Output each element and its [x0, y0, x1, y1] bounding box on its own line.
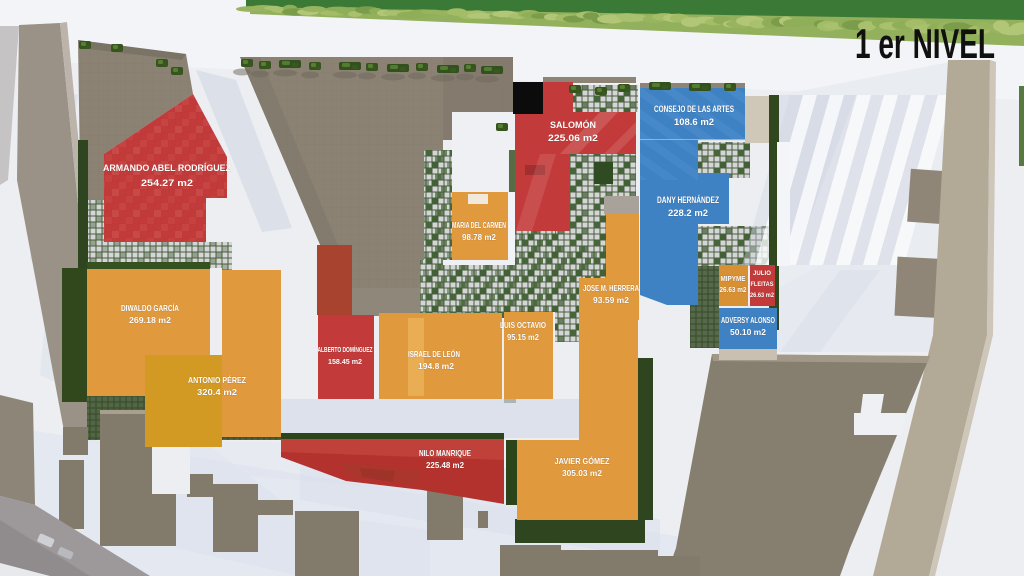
svg-text:JULIO: JULIO: [753, 270, 771, 277]
svg-text:26.63 m2: 26.63 m2: [720, 287, 747, 294]
svg-text:LUIS OCTAVIO: LUIS OCTAVIO: [500, 321, 546, 330]
svg-text:225.06 m2: 225.06 m2: [548, 133, 598, 144]
svg-text:ISRAEL DE LEÓN: ISRAEL DE LEÓN: [408, 348, 460, 359]
svg-text:CONSEJO DE LAS ARTES: CONSEJO DE LAS ARTES: [654, 104, 734, 114]
svg-text:1 er NIVEL: 1 er NIVEL: [855, 20, 995, 67]
svg-text:MIPYME: MIPYME: [721, 276, 746, 283]
svg-text:ANTONIO PÉREZ: ANTONIO PÉREZ: [188, 375, 246, 385]
svg-text:95.15 m2: 95.15 m2: [507, 333, 540, 342]
svg-text:ARMANDO ABEL RODRÍGUEZ: ARMANDO ABEL RODRÍGUEZ: [103, 163, 231, 174]
svg-text:50.10 m2: 50.10 m2: [730, 328, 767, 337]
svg-text:269.18 m2: 269.18 m2: [129, 315, 171, 325]
svg-text:SALOMÓN: SALOMÓN: [550, 119, 596, 131]
svg-text:93.59 m2: 93.59 m2: [593, 296, 630, 305]
svg-text:JOSE M. HERRERA: JOSE M. HERRERA: [583, 284, 639, 293]
svg-text:26.63 m2: 26.63 m2: [750, 292, 774, 299]
svg-text:DIWALDO GARCÍA: DIWALDO GARCÍA: [121, 303, 179, 313]
svg-text:MARIA DEL CARMEN: MARIA DEL CARMEN: [452, 221, 506, 230]
svg-text:ADVERSY ALONSO: ADVERSY ALONSO: [721, 316, 775, 325]
svg-text:98.78 m2: 98.78 m2: [462, 233, 497, 242]
svg-text:158.45 m2: 158.45 m2: [328, 357, 362, 366]
svg-text:225.48 m2: 225.48 m2: [426, 460, 464, 470]
svg-text:305.03 m2: 305.03 m2: [562, 468, 602, 478]
svg-text:228.2 m2: 228.2 m2: [668, 208, 708, 218]
svg-text:254.27 m2: 254.27 m2: [141, 178, 193, 189]
svg-text:194.8 m2: 194.8 m2: [418, 361, 454, 371]
svg-text:NILO MANRIQUE: NILO MANRIQUE: [419, 448, 471, 458]
svg-text:320.4 m2: 320.4 m2: [197, 387, 237, 397]
svg-text:DANY HERNÁNDEZ: DANY HERNÁNDEZ: [657, 195, 719, 205]
svg-text:FLEITAS: FLEITAS: [751, 281, 775, 288]
svg-text:108.6 m2: 108.6 m2: [674, 117, 714, 127]
svg-text:JAVIER GÓMEZ: JAVIER GÓMEZ: [555, 455, 610, 466]
svg-text:ALBERTO DOMÍNGUEZ: ALBERTO DOMÍNGUEZ: [318, 345, 373, 354]
